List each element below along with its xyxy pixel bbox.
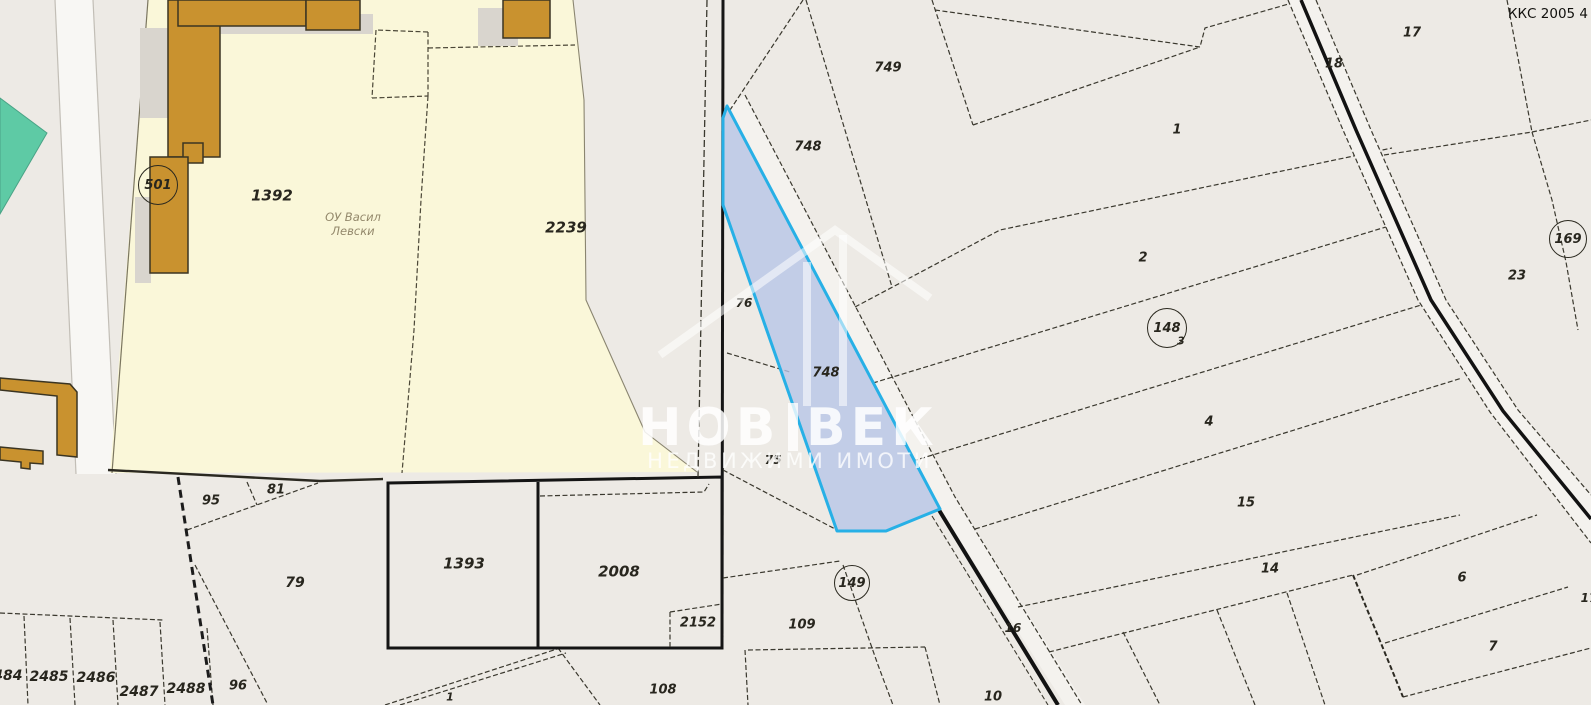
- cadastral-map-viewport: ОУ Васил Левски 139222399581792484248524…: [0, 0, 1591, 705]
- building-school-south: [150, 157, 188, 273]
- cadastral-map-canvas: [0, 0, 1591, 705]
- map-sheet-code: ККС 2005 4: [1508, 6, 1588, 22]
